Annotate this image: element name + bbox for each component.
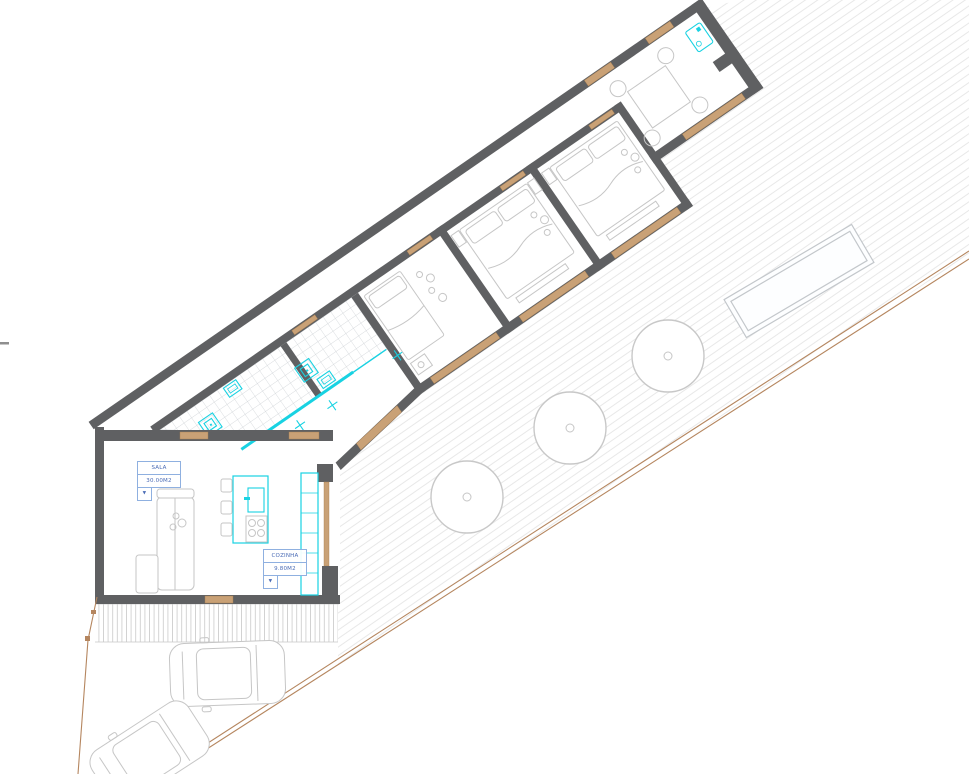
property-boundary-left: [78, 597, 97, 774]
room-label-area: 9.80M2: [263, 563, 307, 576]
level-marker-icon: ▼: [263, 576, 278, 589]
tree: [632, 320, 704, 392]
tree: [431, 461, 503, 533]
room-label-area: 30.00M2: [137, 475, 181, 488]
floor-plan-page: { "drawing": { "type": "architectural-fl…: [0, 0, 969, 774]
room-label-living: SALA 30.00M2 ▼: [137, 461, 181, 501]
floor-plan-canvas: [0, 0, 969, 774]
paved-walkway: [95, 604, 338, 642]
car: [169, 635, 287, 713]
level-marker-icon: ▼: [137, 488, 152, 501]
room-label-title: SALA: [137, 461, 181, 475]
room-label-title: COZINHA: [263, 549, 307, 563]
dimension-dash: [0, 342, 9, 345]
room-label-kitchen: COZINHA 9.80M2 ▼: [263, 549, 307, 589]
tree: [534, 392, 606, 464]
